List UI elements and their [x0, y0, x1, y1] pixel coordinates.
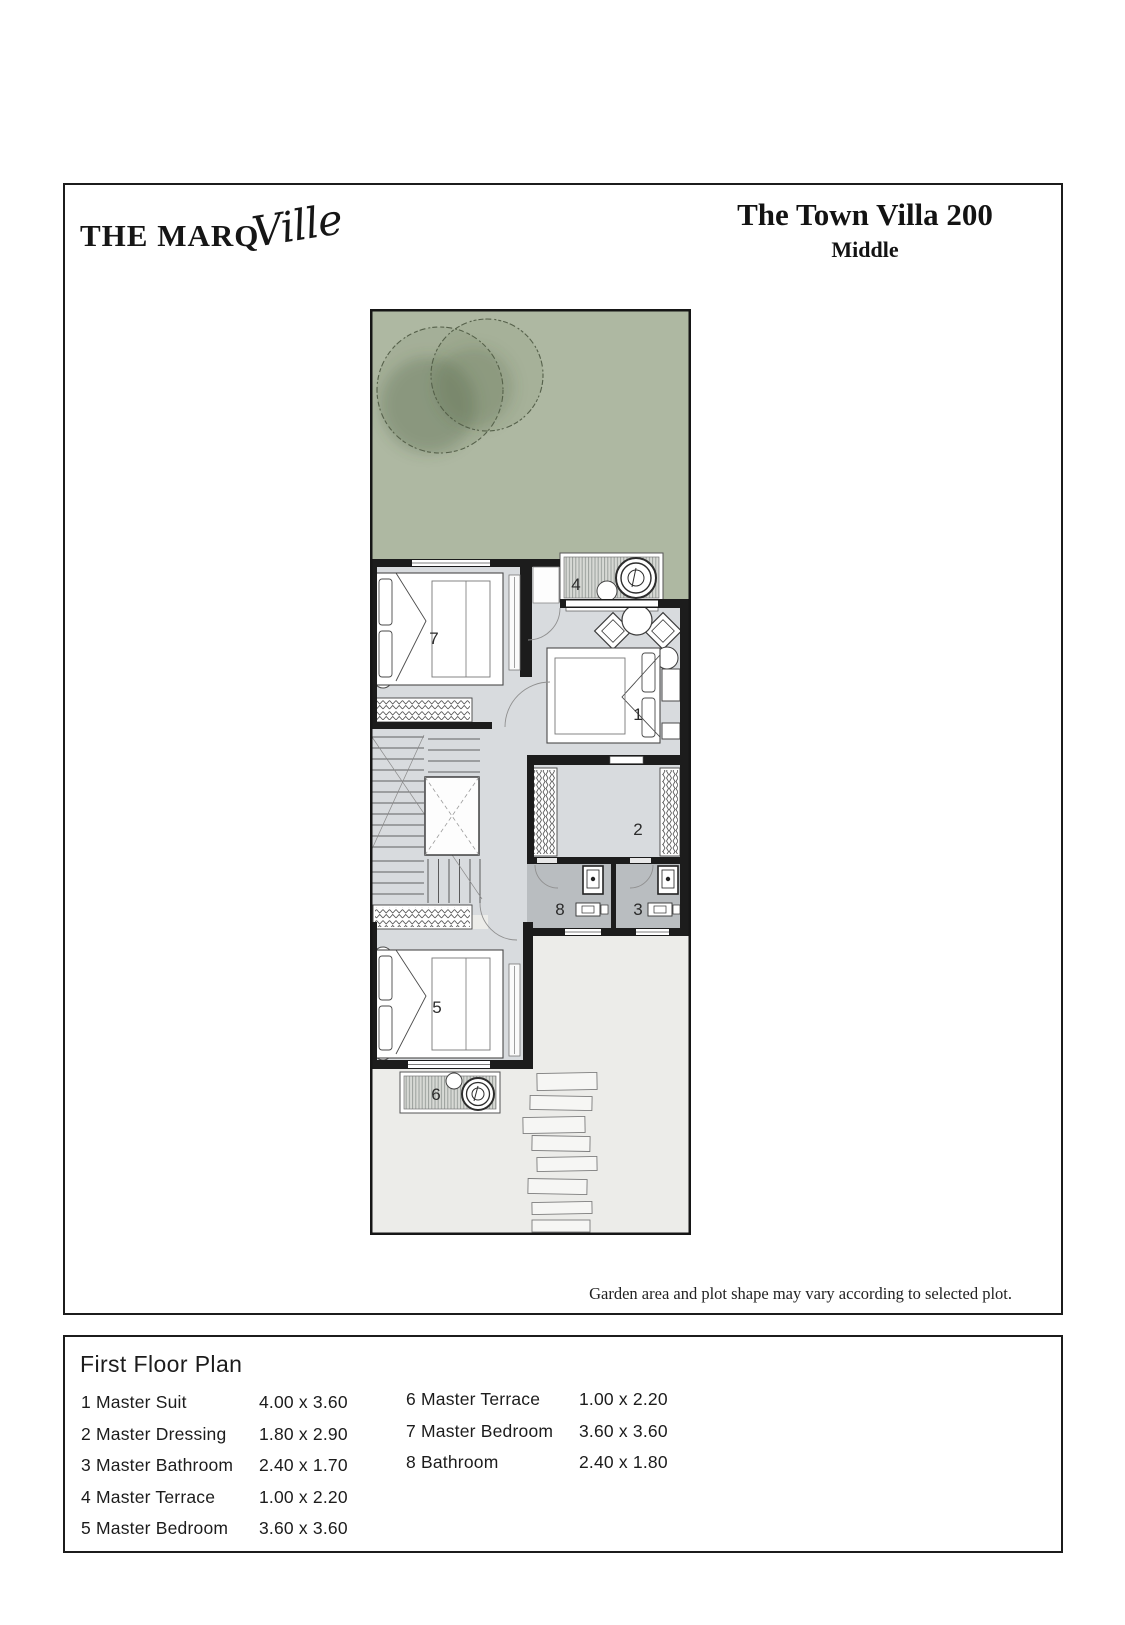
page-title: The Town Villa 200	[685, 199, 1045, 232]
legend-item-number: 3	[81, 1455, 96, 1476]
legend-box: First Floor Plan 1 Master Suit 4.00 x 3.…	[63, 1335, 1063, 1553]
floor-plan: 1 2 3 4 5 6 7 8	[370, 309, 691, 1235]
toilet-icon	[583, 866, 603, 894]
sink-icon	[648, 903, 680, 916]
legend-item-number: 6	[406, 1389, 421, 1410]
bed-room1	[547, 648, 680, 743]
legend-item-dims: 4.00 x 3.60	[259, 1392, 389, 1413]
room-label-5: 5	[432, 998, 441, 1017]
master-terrace-6	[400, 1072, 500, 1113]
disclaimer-text: Garden area and plot shape may vary acco…	[589, 1284, 1012, 1304]
brand-script: Ville	[249, 194, 345, 256]
legend-item: 4 Master Terrace 1.00 x 2.20	[81, 1482, 391, 1514]
room-label-6: 6	[431, 1085, 440, 1104]
legend-item-number: 1	[81, 1392, 96, 1413]
round-table	[462, 1078, 494, 1110]
brand-name: THE MARQ	[80, 218, 259, 253]
legend-item-dims: 3.60 x 3.60	[579, 1421, 709, 1442]
page-subtitle: Middle	[685, 237, 1045, 263]
room-label-7: 7	[429, 629, 438, 648]
legend-item-number: 5	[81, 1518, 96, 1539]
brand-logo: THE MARQVille	[80, 207, 343, 256]
page: THE MARQVille The Town Villa 200 Middle	[0, 0, 1125, 1625]
legend-item: 6 Master Terrace 1.00 x 2.20	[406, 1384, 736, 1416]
legend-item-label: Master Terrace	[96, 1487, 259, 1508]
sink-icon	[576, 903, 608, 916]
legend-column-2: 6 Master Terrace 1.00 x 2.20 7 Master Be…	[406, 1384, 736, 1479]
legend-item-label: Master Bathroom	[96, 1455, 259, 1476]
legend-title: First Floor Plan	[80, 1351, 242, 1378]
legend-column-1: 1 Master Suit 4.00 x 3.60 2 Master Dress…	[81, 1387, 391, 1545]
legend-item: 3 Master Bathroom 2.40 x 1.70	[81, 1450, 391, 1482]
legend-item-label: Master Dressing	[96, 1424, 259, 1445]
legend-item-dims: 1.00 x 2.20	[259, 1487, 389, 1508]
legend-item-label: Master Bedroom	[96, 1518, 259, 1539]
round-table	[616, 558, 656, 598]
legend-item-dims: 1.80 x 2.90	[259, 1424, 389, 1445]
legend-item-dims: 2.40 x 1.80	[579, 1452, 709, 1473]
legend-item-dims: 2.40 x 1.70	[259, 1455, 389, 1476]
legend-item-dims: 1.00 x 2.20	[579, 1389, 709, 1410]
legend-item-number: 8	[406, 1452, 421, 1473]
legend-item: 8 Bathroom 2.40 x 1.80	[406, 1447, 736, 1479]
plan-sheet: THE MARQVille The Town Villa 200 Middle	[63, 183, 1063, 1315]
legend-item: 5 Master Bedroom 3.60 x 3.60	[81, 1513, 391, 1545]
legend-item-number: 4	[81, 1487, 96, 1508]
room-label-4: 4	[571, 575, 580, 594]
title-block: The Town Villa 200 Middle	[685, 199, 1045, 263]
legend-item-label: Master Terrace	[421, 1389, 579, 1410]
legend-item-number: 7	[406, 1421, 421, 1442]
room-label-2: 2	[633, 820, 642, 839]
legend-item: 7 Master Bedroom 3.60 x 3.60	[406, 1416, 736, 1448]
legend-item: 1 Master Suit 4.00 x 3.60	[81, 1387, 391, 1419]
legend-item-number: 2	[81, 1424, 96, 1445]
room-label-1: 1	[633, 705, 642, 724]
legend-item-label: Master Suit	[96, 1392, 259, 1413]
room-label-8: 8	[555, 900, 564, 919]
legend-item: 2 Master Dressing 1.80 x 2.90	[81, 1419, 391, 1451]
legend-item-label: Master Bedroom	[421, 1421, 579, 1442]
room-label-3: 3	[633, 900, 642, 919]
legend-item-dims: 3.60 x 3.60	[259, 1518, 389, 1539]
legend-item-label: Bathroom	[421, 1452, 579, 1473]
toilet-icon	[658, 866, 678, 894]
